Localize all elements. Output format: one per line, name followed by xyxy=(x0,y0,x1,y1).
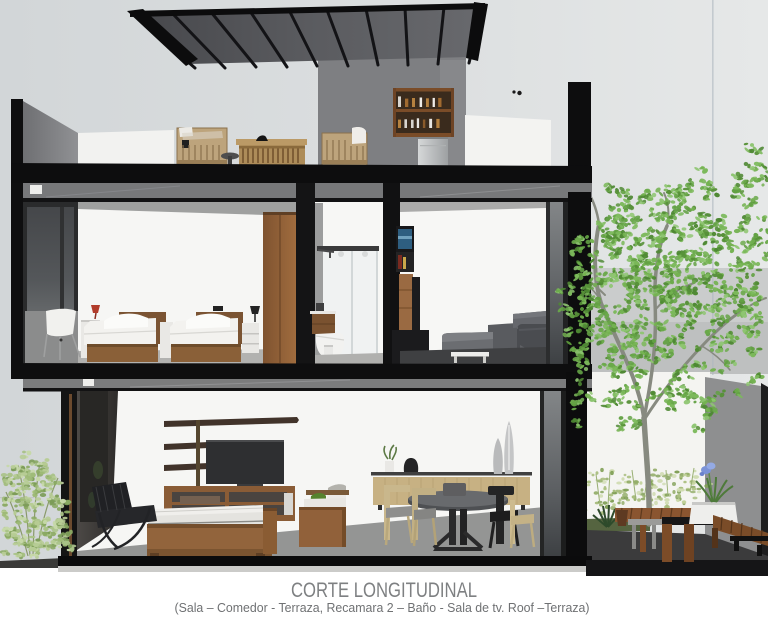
svg-text:CORTE LONGITUDINAL: CORTE LONGITUDINAL xyxy=(291,579,477,602)
svg-text:(Sala – Comedor - Terraza, Rec: (Sala – Comedor - Terraza, Recamara 2 – … xyxy=(175,601,590,615)
